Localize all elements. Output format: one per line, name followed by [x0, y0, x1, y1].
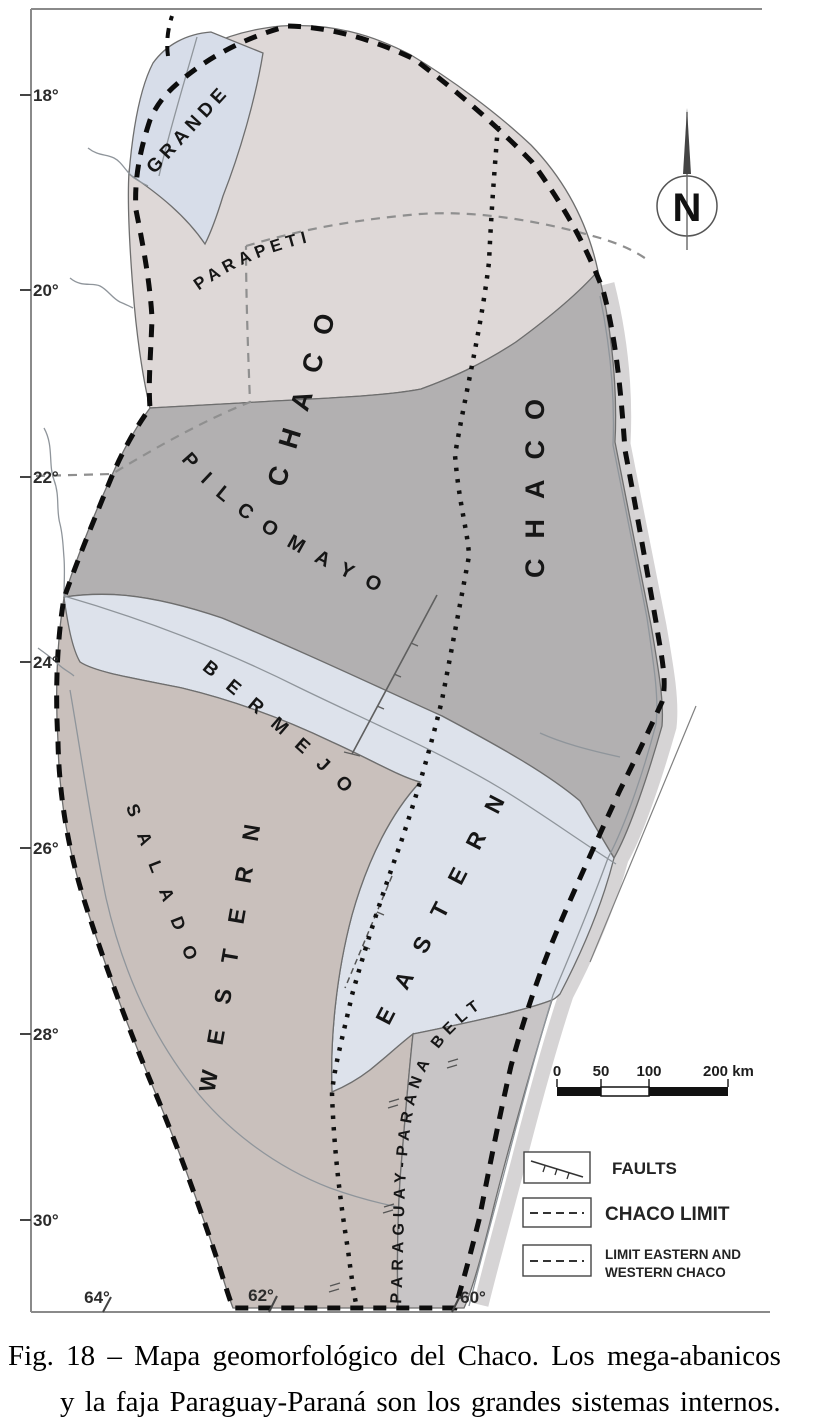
north-arrow-needle-tip — [683, 108, 691, 174]
legend-item-faults: FAULTS — [524, 1152, 677, 1183]
legend-item-chaco-limit: CHACO LIMIT — [523, 1198, 730, 1227]
legend-chaco-limit-label: CHACO LIMIT — [605, 1204, 730, 1225]
caption-line-2: y la faja Paraguay-Paraná son los grande… — [0, 1382, 815, 1422]
label-chaco-east: CHACO — [520, 379, 550, 578]
scale-bar-segment-1 — [557, 1087, 601, 1096]
lat-label-24: 24° — [33, 653, 59, 672]
legend-item-ew-limit: LIMIT EASTERN AND WESTERN CHACO — [523, 1245, 741, 1280]
lat-label-18: 18° — [33, 86, 59, 105]
lat-label-26: 26° — [33, 839, 59, 858]
north-arrow-label: N — [673, 186, 702, 230]
lat-label-22: 22° — [33, 468, 59, 487]
legend-faults-label: FAULTS — [612, 1159, 677, 1178]
river-west-2 — [70, 278, 133, 308]
lat-label-28: 28° — [33, 1025, 59, 1044]
scale-bar-segment-3 — [649, 1087, 728, 1096]
scale-bar-segment-2 — [601, 1087, 649, 1096]
scale-label-0: 0 — [553, 1063, 561, 1080]
scale-label-100: 100 — [636, 1063, 661, 1080]
legend: FAULTS CHACO LIMIT LIMIT EASTERN AND WES… — [523, 1152, 741, 1280]
lat-label-20: 20° — [33, 281, 59, 300]
figure-caption: Fig. 18 – Mapa geomorfológico del Chaco.… — [0, 1336, 815, 1422]
lon-label-62: 62° — [248, 1286, 274, 1305]
lon-label-64: 64° — [84, 1288, 110, 1307]
figure-page: 18° 20° 22° 24° 26° 28° 30° 64° 62° 60° … — [0, 0, 815, 1428]
legend-faults-box — [524, 1152, 590, 1183]
latitude-ticks — [20, 95, 31, 1220]
scale-bar: 0 50 100 200 km — [553, 1063, 754, 1096]
legend-ew-limit-label-line2: WESTERN CHACO — [605, 1265, 726, 1280]
scale-label-50: 50 — [593, 1063, 610, 1080]
lat-label-30: 30° — [33, 1211, 59, 1230]
map-regions — [57, 26, 663, 1308]
chaco-geomorphological-map: 18° 20° 22° 24° 26° 28° 30° 64° 62° 60° … — [0, 0, 815, 1332]
north-arrow: N — [657, 108, 717, 250]
scale-label-200km: 200 km — [703, 1063, 754, 1080]
legend-ew-limit-label-line1: LIMIT EASTERN AND — [605, 1247, 741, 1262]
caption-line-1: Fig. 18 – Mapa geomorfológico del Chaco.… — [0, 1336, 815, 1376]
lon-label-60: 60° — [460, 1288, 486, 1307]
latitude-labels: 18° 20° 22° 24° 26° 28° 30° — [33, 86, 59, 1230]
pilcomayo-river — [44, 428, 64, 596]
scale-bar-ticks — [557, 1079, 728, 1087]
